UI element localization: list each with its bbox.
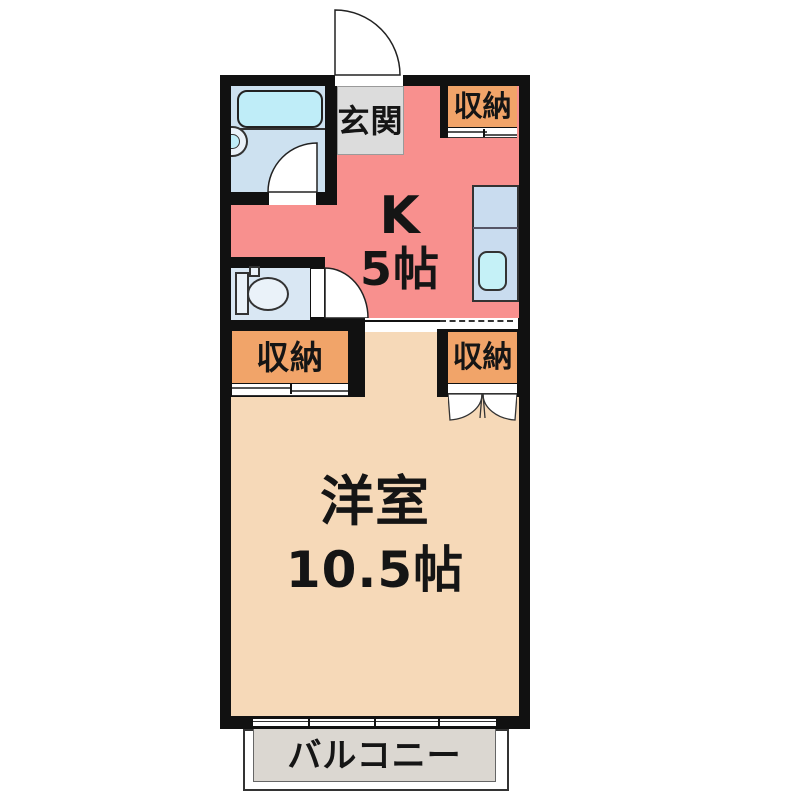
closet-bottom-left-slider-line1 (232, 387, 292, 389)
balcony-window-tick1 (308, 718, 310, 726)
bathtub-platform-line (231, 128, 325, 130)
closet-top-right-slider-line2 (483, 134, 517, 136)
closet-top-right-slider-line1 (448, 131, 487, 133)
western-room-label: 洋室 10.5帖 (231, 455, 519, 615)
bathtub-icon (237, 90, 323, 128)
entrance-door-arc (330, 5, 410, 80)
western-room-name: 洋室 (320, 475, 430, 529)
closet-top-right-slider-tick (483, 129, 485, 137)
wall-bottom-right-segment (496, 716, 530, 729)
toilet-door-arc (322, 265, 372, 323)
floorplan-canvas: { "floorplan": { "genkan": { "label": "玄… (0, 0, 800, 800)
toilet-bowl-icon (247, 277, 289, 311)
kitchen-counter-divider (473, 227, 518, 229)
western-room-size: 10.5帖 (286, 545, 464, 595)
balcony-window-tick2 (374, 718, 376, 726)
genkan-label: 玄関 (337, 86, 404, 155)
kitchen-name: K (379, 190, 420, 242)
kitchen-room-door-panel-line (365, 320, 440, 322)
closet-bottom-right-label: 収納 (448, 332, 517, 383)
bathroom-door-arc (265, 140, 321, 196)
balcony-label: バルコニー (253, 729, 496, 782)
closet-bottom-left-slider-tick (290, 384, 292, 394)
kitchen-sink-icon (478, 251, 507, 291)
kitchen-room-door-track-dashed (440, 320, 513, 322)
closet-top-right-label: 収納 (448, 86, 517, 127)
wall-left (220, 75, 231, 729)
balcony-window-tick3 (438, 718, 440, 726)
wall-bottom-left-segment (220, 716, 253, 729)
closet-bottom-left-label: 収納 (232, 331, 348, 383)
wall-closet-topright-stub (440, 75, 448, 138)
closet-bottom-right-bifold-doors (448, 393, 517, 422)
closet-bottom-left-slider-line2 (290, 390, 348, 392)
toilet-button-icon (249, 266, 260, 277)
wall-right (519, 75, 530, 729)
